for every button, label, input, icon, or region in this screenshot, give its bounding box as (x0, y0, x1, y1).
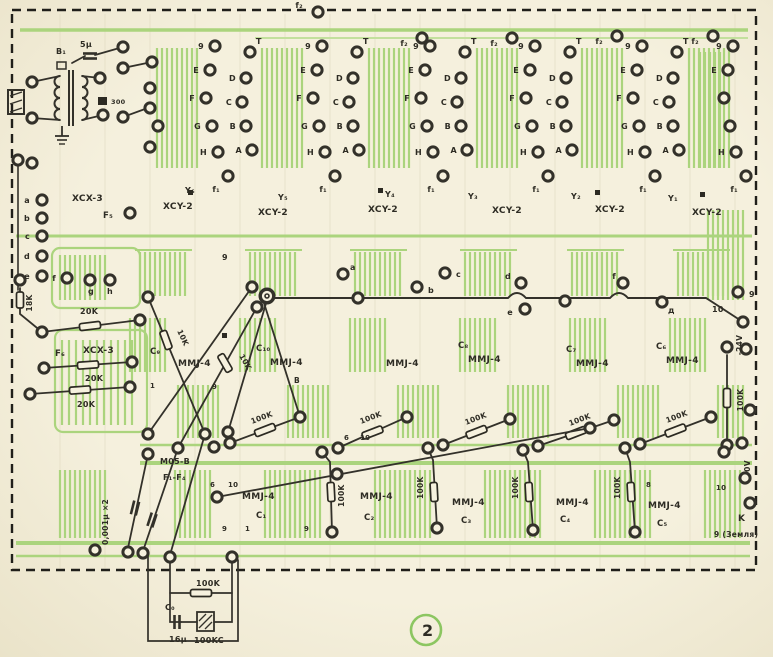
solder-pad (565, 47, 575, 57)
label-board-column_groups-left_labels-4: H (718, 148, 725, 157)
solder-pad (165, 552, 175, 562)
label-board-xcy_units-2-part: XCY-2 (368, 205, 398, 215)
label-board-column_groups-right_labels-2: C (546, 98, 552, 107)
label-board-xcy_units-4-ref: Y₂ (570, 192, 581, 201)
label-board-column_groups-right_labels-0: T (256, 37, 262, 46)
index-mark (378, 188, 383, 193)
solder-pad (668, 121, 678, 131)
solder-pad (25, 389, 35, 399)
solder-pad (295, 412, 305, 422)
solder-pad (618, 278, 628, 288)
label-board-lower_units-3-res: 100K (511, 475, 520, 499)
label-board-pad_numbers-n10: 10 (360, 434, 370, 442)
label-board-lower_units-2-cap: С₃ (461, 516, 472, 526)
label-board-lower_units-0-part: MMJ-4 (242, 492, 275, 502)
resistor-body (79, 321, 101, 331)
label-board-pad_numbers-n6: 6 (344, 434, 349, 442)
pcb-trace-comb (477, 48, 517, 168)
label-board-xcy_units-0-part: XCY-2 (163, 202, 193, 212)
solder-pad (85, 275, 95, 285)
solder-pad (533, 441, 543, 451)
solder-pad (428, 147, 438, 157)
solder-pad (738, 317, 748, 327)
solder-pad (543, 171, 553, 181)
solder-pad (664, 97, 674, 107)
solder-pad (462, 145, 472, 155)
pcb-trace-comb (582, 48, 622, 168)
solder-pad (728, 41, 738, 51)
solder-pad (533, 147, 543, 157)
solder-pad (635, 439, 645, 449)
label-board-upper_units-3-cap: С₈ (458, 341, 469, 351)
solder-pad (317, 447, 327, 457)
solder-pad (637, 41, 647, 51)
label-board-xcx_connectors-1-resistors-1: 20K (85, 374, 104, 383)
label-board-xcx_connectors-0-part: XCX-3 (72, 194, 103, 204)
solder-pad (153, 121, 163, 131)
label-board-upper_units-5-part: MMJ-4 (666, 356, 699, 366)
solder-pad (612, 31, 622, 41)
solder-pad (722, 342, 732, 352)
label-board-lower_units-1-part: MMJ-4 (360, 492, 393, 502)
label-board-xcx_connectors-0-pins-2: c (25, 232, 30, 241)
solder-pad (330, 171, 340, 181)
label-board-column_groups-right_labels-3: B (445, 122, 451, 131)
pcb-trace-comb (355, 252, 400, 296)
solder-pad (201, 93, 211, 103)
solder-pad (247, 145, 257, 155)
solder-pad (561, 73, 571, 83)
label-board-column_groups-right_labels-4: A (451, 146, 458, 155)
label-board-xcy_units-1-part: XCY-2 (258, 208, 288, 218)
solder-pad (210, 41, 220, 51)
label-board-pad_numbers-n8: 8 (646, 481, 651, 489)
label-board-xcx_connectors-1-resistors-2: 20K (77, 400, 96, 409)
pcb-trace-comb (60, 470, 105, 538)
solder-pad (327, 527, 337, 537)
external-block (197, 612, 214, 631)
solder-pad (737, 438, 747, 448)
label-board-external-cap_ref: С₀ (165, 603, 175, 612)
solder-pad (317, 41, 327, 51)
pcb-trace-comb (369, 48, 409, 168)
label-board-pad_numbers-nB: В (294, 376, 300, 385)
label-board-column_groups-left_labels-2: F (404, 94, 410, 103)
solder-pad (731, 147, 741, 157)
solder-pad (135, 315, 145, 325)
label-board-upper_units-0-part: MMJ-4 (178, 359, 211, 369)
label-board-column_groups-left_labels-5: f₁ (730, 185, 738, 194)
solder-pad (37, 327, 47, 337)
solder-pad (438, 440, 448, 450)
solder-pad (223, 171, 233, 181)
solder-pad (344, 97, 354, 107)
label-board-filter_unit-range: F₁-F₄ (163, 473, 186, 482)
label-board-column_groups-right_labels-4: A (556, 146, 563, 155)
label-board-column_groups-right_labels-4: A (343, 146, 350, 155)
solder-pad (628, 93, 638, 103)
capacitor-icon (147, 513, 156, 528)
solder-pad (209, 442, 219, 452)
label-board-column_groups-right_labels-2: C (333, 98, 339, 107)
label-board-input-cap: 5μ (80, 40, 92, 49)
solder-pad (241, 121, 251, 131)
solder-pad (332, 469, 342, 479)
label-board-xcx_connectors-0-pins-5: f (52, 274, 56, 283)
solder-pad (13, 155, 23, 165)
label-board-upper_units-0-cap: С₉ (150, 347, 161, 357)
solder-pad (740, 473, 750, 483)
solder-pad (313, 7, 323, 17)
label-board-column_groups-left_labels-5: f₁ (532, 185, 540, 194)
resistor-body (724, 389, 731, 408)
solder-pad (27, 113, 37, 123)
label-board-xcx_connectors-0-ref: F₅ (103, 211, 113, 221)
solder-pad (354, 145, 364, 155)
solder-pad (105, 275, 115, 285)
label-board-column_groups-left_labels-0: 9 (198, 42, 204, 51)
solder-pad (118, 112, 128, 122)
solder-pad (650, 171, 660, 181)
solder-pad (557, 97, 567, 107)
label-board-column_groups-left_labels-5: f₁ (639, 185, 647, 194)
solder-pad (37, 195, 47, 205)
pcb-trace-comb (285, 470, 320, 538)
solder-pad (205, 65, 215, 75)
solder-pad (37, 271, 47, 281)
resistor-body (465, 425, 487, 439)
label-board-top_feeds-4: f₂ (691, 37, 699, 46)
pcb-trace-comb (678, 252, 723, 296)
label-board-top_feeds-3: f₂ (595, 37, 603, 46)
label-board-input-transformer: В₁ (56, 47, 66, 56)
solder-pad (314, 121, 324, 131)
label-board-external-cap_val: 16μ (169, 635, 187, 644)
solder-pad (118, 42, 128, 52)
solder-pad (37, 251, 47, 261)
solder-pad (530, 41, 540, 51)
label-board-bus_points-1: a (350, 263, 356, 272)
label-board-xcy_units-1-ref: Y₅ (277, 193, 288, 202)
label-board-column_groups-left_labels-2: F (616, 94, 622, 103)
resistor-body (254, 423, 276, 437)
label-board-external-block: 100KC (194, 636, 224, 645)
label-board-power-terminal_k: K (738, 514, 746, 524)
label-board-column_groups-left_labels-1: E (513, 66, 519, 75)
label-board-pad_numbers-n9: 9 (304, 525, 309, 533)
solder-pad (27, 158, 37, 168)
label-board-xcx_connectors-1-resistors-0: 20K (80, 307, 99, 316)
solder-pad (708, 31, 718, 41)
solder-pad (90, 545, 100, 555)
label-board-upper_units-0-res: 10K (175, 328, 191, 348)
label-board-bus_points-3: c (456, 270, 461, 279)
label-board-xcy_units-3-part: XCY-2 (492, 206, 522, 216)
solder-pad (452, 97, 462, 107)
solder-pad (719, 93, 729, 103)
label-board-column_groups-right_labels-2: C (226, 98, 232, 107)
label-board-column_groups-right_labels-1: D (229, 74, 236, 83)
solder-pad (352, 47, 362, 57)
label-board-bus_points-6: f (612, 272, 616, 281)
resistor-body (17, 292, 24, 308)
label-board-xcx_connectors-0-pins-1: b (24, 214, 30, 223)
label-board-power-ground: 9 (Земля) (714, 530, 758, 539)
solder-pad (143, 429, 153, 439)
label-board-column_groups-left_labels-5: f₁ (319, 185, 327, 194)
label-board-power-supply_res: 100K (736, 388, 745, 412)
pcb-trace-comb (508, 385, 548, 438)
label-board-column_groups-left_labels-2: F (189, 94, 195, 103)
label-board-column_groups-left_labels-1: E (408, 66, 414, 75)
label-board-upper_units-3-part: MMJ-4 (468, 355, 501, 365)
solder-pad (672, 47, 682, 57)
solder-pad (432, 523, 442, 533)
label-board-upper_units-2-part: MMJ-4 (386, 359, 419, 369)
label-board-lower_units-0-cap: С₁ (256, 511, 267, 521)
label-board-column_groups-right_labels-3: B (337, 122, 343, 131)
solder-pad (27, 77, 37, 87)
solder-pad (138, 548, 148, 558)
solder-pad (118, 63, 128, 73)
resistor-body (69, 386, 90, 394)
solder-pad (147, 57, 157, 67)
solder-pad (657, 297, 667, 307)
solder-pad (425, 41, 435, 51)
pcb-trace-comb (705, 470, 740, 538)
jumper-wire (128, 454, 148, 548)
label-board-lower_units-3-cap: С₄ (560, 515, 571, 525)
label-board-bus_points-4: d (505, 272, 511, 281)
solder-pad (525, 65, 535, 75)
scanned-circuit-diagram: 2f₂f₂f₂f₂f₂9EFGHf₁TDCBA9EFGHf₁TDCBA9EFGH… (0, 0, 773, 657)
label-board-column_groups-left_labels-3: G (514, 122, 521, 131)
resistor-body (664, 423, 686, 437)
solder-pad (260, 289, 274, 303)
solder-pad (674, 145, 684, 155)
label-board-column_groups-left_labels-4: H (307, 148, 314, 157)
solder-pad (223, 427, 233, 437)
label-board-column_groups-right_labels-0: T (683, 37, 689, 46)
label-board-column_groups-right_labels-4: A (663, 146, 670, 155)
label-board-power-pin10: 10 (716, 484, 726, 492)
label-board-pad_numbers-n9: 9 (212, 383, 217, 391)
label-board-column_groups-left_labels-5: f₁ (427, 185, 435, 194)
label-board-coupling_resistors-4: 100K (664, 408, 689, 425)
label-board-bus_points-2: b (428, 286, 434, 295)
solder-pad (353, 293, 363, 303)
label-board-pad_numbers-n6: 6 (210, 481, 215, 489)
label-board-column_groups-left_labels-4: H (415, 148, 422, 157)
solder-pad (125, 382, 135, 392)
solder-pad (668, 73, 678, 83)
label-board-xcy_units-5-part: XCY-2 (692, 208, 722, 218)
label-board-upper_units-4-part: MMJ-4 (576, 359, 609, 369)
solder-pad (507, 33, 517, 43)
solder-pad (348, 73, 358, 83)
solder-pad (320, 147, 330, 157)
solder-pad (640, 147, 650, 157)
label-board-column_groups-right_labels-0: T (576, 37, 582, 46)
label-board-column_groups-left_labels-0: 9 (716, 42, 722, 51)
label-board-bus_points-0: 9 (222, 253, 228, 262)
solder-pad (719, 447, 729, 457)
label-board-column_groups-left_labels-3: G (409, 122, 416, 131)
label-board-filter_unit-caps: 0,001μ ×2 (101, 499, 110, 545)
label-board-pad_numbers-n9: 9 (222, 525, 227, 533)
resistor-body (525, 482, 533, 501)
label-board-lower_units-1-res: 100K (337, 483, 346, 507)
label-board-bus_points-9: 9 (749, 290, 755, 299)
solder-pad (241, 73, 251, 83)
label-board-column_groups-left_labels-4: H (627, 148, 634, 157)
solder-pad (632, 65, 642, 75)
label-board-column_groups-left_labels-2: F (509, 94, 515, 103)
solder-pad (416, 93, 426, 103)
label-board-column_groups-left_labels-1: E (620, 66, 626, 75)
label-board-column_groups-right_labels-2: C (653, 98, 659, 107)
solder-pad (520, 304, 530, 314)
pcb-trace-comb (465, 252, 510, 296)
solder-pad (460, 47, 470, 57)
pcb-trace-comb (262, 48, 302, 168)
solder-pad (227, 552, 237, 562)
label-board-column_groups-left_labels-0: 9 (305, 42, 311, 51)
label-board-column_groups-right_labels-1: D (549, 74, 556, 83)
solder-pad (518, 445, 528, 455)
label-board-column_groups-left_labels-3: G (194, 122, 201, 131)
solder-pad (438, 171, 448, 181)
label-board-column_groups-left_labels-4: H (200, 148, 207, 157)
solder-pad (630, 527, 640, 537)
label-board-xcx_connectors-0-pins-4: e (24, 272, 30, 281)
solder-pad (95, 73, 105, 83)
solder-pad (561, 121, 571, 131)
solder-pad (237, 97, 247, 107)
pcb-trace-comb (288, 385, 328, 438)
label-board-pad_numbers-n10: 10 (228, 481, 238, 489)
input-transformer (8, 62, 107, 144)
label-board-bus_points-5: e (507, 308, 513, 317)
solder-pad (634, 121, 644, 131)
solder-pad (440, 268, 450, 278)
label-board-filter_unit-part: M05-B (160, 457, 190, 466)
solder-pad (521, 93, 531, 103)
solder-pad (143, 449, 153, 459)
label-figure-number: 2 (422, 621, 433, 640)
label-board-pad_numbers-n1: 1 (245, 525, 250, 533)
label-board-top_feeds-2: f₂ (490, 39, 498, 48)
label-board-column_groups-left_labels-4: H (520, 148, 527, 157)
label-board-lower_units-3-part: MMJ-4 (556, 498, 589, 508)
label-board-column_groups-right_labels-4: A (236, 146, 243, 155)
label-board-column_groups-right_labels-3: B (657, 122, 663, 131)
label-board-xcx_connectors-0-pins-0: a (24, 196, 30, 205)
label-board-column_groups-left_labels-1: E (300, 66, 306, 75)
solder-pad (567, 145, 577, 155)
pcb-trace-comb (157, 48, 197, 168)
resistor-body (77, 361, 98, 369)
label-board-lower_units-4-res: 100K (613, 475, 622, 499)
solder-pad (308, 93, 318, 103)
solder-pad (516, 278, 526, 288)
label-board-upper_units-4-cap: С₇ (566, 345, 577, 355)
index-mark (700, 192, 705, 197)
label-board-xcx_connectors-0-pins-3: d (24, 252, 30, 261)
label-board-column_groups-right_labels-1: D (336, 74, 343, 83)
label-board-xcx_connectors-1-part: XCX-3 (83, 346, 114, 356)
label-board-column_groups-right_labels-0: T (471, 37, 477, 46)
solder-pad (725, 121, 735, 131)
label-board-column_groups-left_labels-0: 9 (413, 42, 419, 51)
resistor-body (430, 482, 438, 501)
solder-pad (560, 296, 570, 306)
solder-pad (528, 525, 538, 535)
solder-pad (145, 83, 155, 93)
label-board-column_groups-right_labels-1: D (656, 74, 663, 83)
label-board-column_groups-left_labels-1: E (193, 66, 199, 75)
solder-pad (312, 65, 322, 75)
label-board-coupling_resistors-1: 100K (358, 409, 383, 426)
solder-pad (527, 121, 537, 131)
solder-pad (456, 121, 466, 131)
pcb-trace-comb (572, 252, 617, 296)
label-board-lower_units-2-res: 100K (416, 475, 425, 499)
label-board-pad_numbers-n1: 1 (150, 382, 155, 390)
label-board-xcy_units-4-part: XCY-2 (595, 205, 625, 215)
pcb-trace-comb (140, 252, 185, 296)
solder-pad (420, 65, 430, 75)
label-board-lower_units-4-cap: С₅ (657, 519, 668, 529)
label-board-xcy_units-3-ref: Y₃ (467, 192, 478, 201)
label-board-top_feeds-0: f₂ (295, 1, 303, 10)
solder-pad (143, 292, 153, 302)
label-board-column_groups-left_labels-5: f₁ (212, 185, 220, 194)
label-board-xcy_units-2-ref: Y₄ (384, 190, 395, 199)
solder-pad (609, 415, 619, 425)
solder-pad (39, 363, 49, 373)
label-board-column_groups-left_labels-3: G (301, 122, 308, 131)
solder-pad (37, 231, 47, 241)
solder-pad (123, 547, 133, 557)
label-board-top_feeds-1: f₂ (400, 39, 408, 48)
solder-pad (402, 412, 412, 422)
solder-pad (723, 65, 733, 75)
solder-pad (213, 147, 223, 157)
solder-pad (145, 142, 155, 152)
solder-pad (706, 412, 716, 422)
label-board-column_groups-left_labels-0: 9 (518, 42, 524, 51)
solder-pad (745, 498, 755, 508)
solder-pad (247, 282, 257, 292)
label-board-column_groups-left_labels-3: G (621, 122, 628, 131)
label-board-xcy_units-0-ref: Y₆ (184, 186, 195, 195)
label-board-lower_units-4-part: MMJ-4 (648, 501, 681, 511)
solder-pad (98, 110, 108, 120)
solder-pad (225, 438, 235, 448)
label-board-xcx_connectors-1-ref: F₆ (55, 349, 65, 359)
label-board-column_groups-right_labels-2: C (441, 98, 447, 107)
resistor-body (191, 590, 212, 597)
solder-pad (127, 357, 137, 367)
label-board-lower_units-2-part: MMJ-4 (452, 498, 485, 508)
label-board-xcx_connectors-0-pins-6: g (88, 287, 94, 296)
diagram-canvas: 2f₂f₂f₂f₂f₂9EFGHf₁TDCBA9EFGHf₁TDCBA9EFGH… (0, 0, 773, 657)
solder-pad (422, 121, 432, 131)
jumper-wire (148, 555, 238, 641)
solder-pad (252, 302, 262, 312)
pcb-trace-comb (350, 318, 385, 372)
